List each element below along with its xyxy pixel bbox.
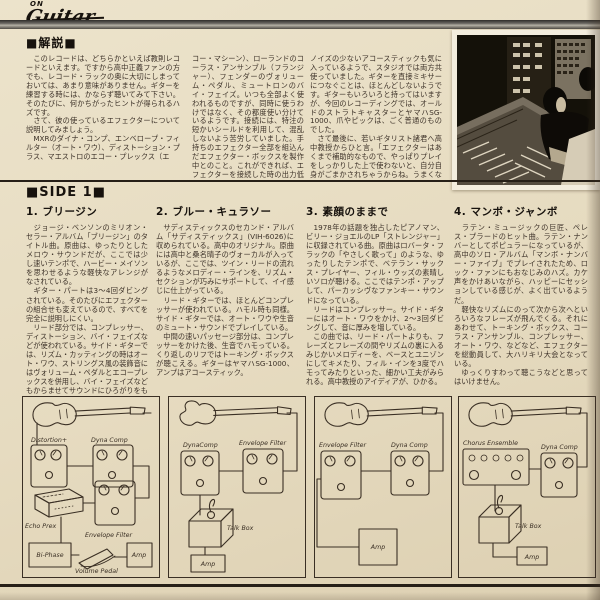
horizontal-rule-top xyxy=(0,180,600,182)
effects-chain-diagram-3: Envelope Filter Dyna Comp Amp xyxy=(314,396,452,578)
track-1-title: 1. ブリージン xyxy=(26,204,148,219)
track-4-mambo-jumbo: 4. マンボ・ジャンボ ラテン・ミュージックの巨匠、ペレス・プラードのヒット曲。… xyxy=(454,204,588,394)
track-1-body: ジョージ・ベンソンのミリオン・セラー・アルバム「ブリージン」のタイトル曲。原曲は… xyxy=(26,223,148,394)
effects-chain-1-art: Distortion+ Dyna Comp Envelope xyxy=(23,397,156,574)
pedal-label: DynaComp xyxy=(183,442,218,449)
pedal-label: Talk Box xyxy=(515,523,542,530)
track-1-breezin: 1. ブリージン ジョージ・ベンソンのミリオン・セラー・アルバム「ブリージン」の… xyxy=(26,204,148,394)
metallic-divider-bar xyxy=(0,20,600,29)
section-header-kaisetsu: ■解説■ xyxy=(26,34,77,51)
studio-photo xyxy=(452,30,600,190)
strat-guitar-icon xyxy=(469,403,581,426)
side1-header: ■SIDE 1■ xyxy=(26,185,106,200)
track-4-body: ラテン・ミュージックの巨匠、ペレス・プラードのヒット曲。ラテン・ナンバーとしてポ… xyxy=(454,223,588,386)
effects-chain-4-art: Chorus Ensemble Dyna Comp xyxy=(459,397,592,574)
strat-guitar-icon xyxy=(33,403,145,426)
pedal-label: Volume Pedal xyxy=(75,568,118,574)
effects-chain-2-art: DynaComp Envelope Filter xyxy=(169,397,302,574)
pedal-label: Distortion+ xyxy=(31,436,67,444)
chorus-ensemble-pedal-icon xyxy=(463,449,529,485)
pedal-label: Dyna Comp xyxy=(391,442,428,449)
pedal-label: Dyna Comp xyxy=(541,444,578,451)
dyna-comp-pedal-icon xyxy=(391,451,429,495)
envelope-filter-pedal-icon xyxy=(243,449,283,493)
dyna-comp-pedal-icon xyxy=(541,453,577,497)
on-guitar-logo: ON Guitar xyxy=(26,0,94,20)
pedal-label: Envelope Filter xyxy=(85,531,133,539)
pedal-label: Talk Box xyxy=(227,525,254,532)
track-4-title: 4. マンボ・ジャンボ xyxy=(454,204,588,219)
talk-box-icon xyxy=(189,499,233,547)
studio-photo-art xyxy=(457,35,595,185)
page-bottom-shadow xyxy=(0,592,600,600)
liner-notes-page: ON Guitar ■解説■ このレコードは、どちらかといえば教則レコードといえ… xyxy=(0,0,600,600)
track-3-body: 1978年の話題を独占したピアノマン、ビリー・ジョエルのLP「ストレンジャー」に… xyxy=(306,223,444,386)
talk-box-icon xyxy=(479,495,521,543)
echoplex-icon xyxy=(35,489,83,517)
effects-chain-diagram-4: Chorus Ensemble Dyna Comp xyxy=(458,396,596,578)
sg-guitar-icon xyxy=(180,401,291,425)
distortion-plus-pedal-icon xyxy=(31,445,67,487)
track-2-body: サディスティックスのセカンド・アルバム「サディスティックス」(VIH-6026)… xyxy=(156,223,294,377)
strat-guitar-icon xyxy=(325,403,437,426)
track-3-just-the-way-you-are: 3. 素顔のままで 1978年の話題を独占したピアノマン、ビリー・ジョエルのLP… xyxy=(306,204,444,394)
intro-column-1: このレコードは、どちらかといえば教則レコードといえます。ですから高中正義ファンの… xyxy=(26,55,180,179)
pedal-label: Chorus Ensemble xyxy=(463,440,518,447)
amp-label: Amp xyxy=(524,554,539,561)
amp-label: Amp xyxy=(131,552,146,559)
track-2-title: 2. ブルー・キュラソー xyxy=(156,204,294,219)
amp-label: Amp xyxy=(200,561,215,568)
amp-label: Amp xyxy=(370,544,385,551)
effects-chain-diagram-1: Distortion+ Dyna Comp Envelope xyxy=(22,396,160,578)
track-2-blue-curacao: 2. ブルー・キュラソー サディスティックスのセカンド・アルバム「サディスティッ… xyxy=(156,204,294,394)
track-3-title: 3. 素顔のままで xyxy=(306,204,444,219)
dyna-comp-pedal-icon xyxy=(181,451,219,495)
pedal-label: Envelope Filter xyxy=(239,439,287,447)
horizontal-rule-bottom xyxy=(0,584,600,587)
volume-pedal-icon xyxy=(79,549,115,569)
effects-chain-diagram-2: DynaComp Envelope Filter xyxy=(168,396,306,578)
pedal-label: Echo Prex xyxy=(25,523,57,530)
pedal-label: Envelope Filter xyxy=(319,441,367,449)
envelope-filter-pedal-icon xyxy=(95,481,135,525)
effects-chain-3-art: Envelope Filter Dyna Comp Amp xyxy=(315,397,448,574)
pedal-label: Bi-Phase xyxy=(36,552,63,559)
envelope-filter-pedal-icon xyxy=(321,451,361,499)
pedal-label: Dyna Comp xyxy=(91,437,128,444)
intro-column-2: コー・マシーン）、ローランドのコーラス・アンサンブル（フランジャー）、フェンダー… xyxy=(192,55,304,179)
intro-column-3: ノイズの少ないアコースティックも気に入っているようで、スタジオでは両方共使ってい… xyxy=(310,55,442,179)
